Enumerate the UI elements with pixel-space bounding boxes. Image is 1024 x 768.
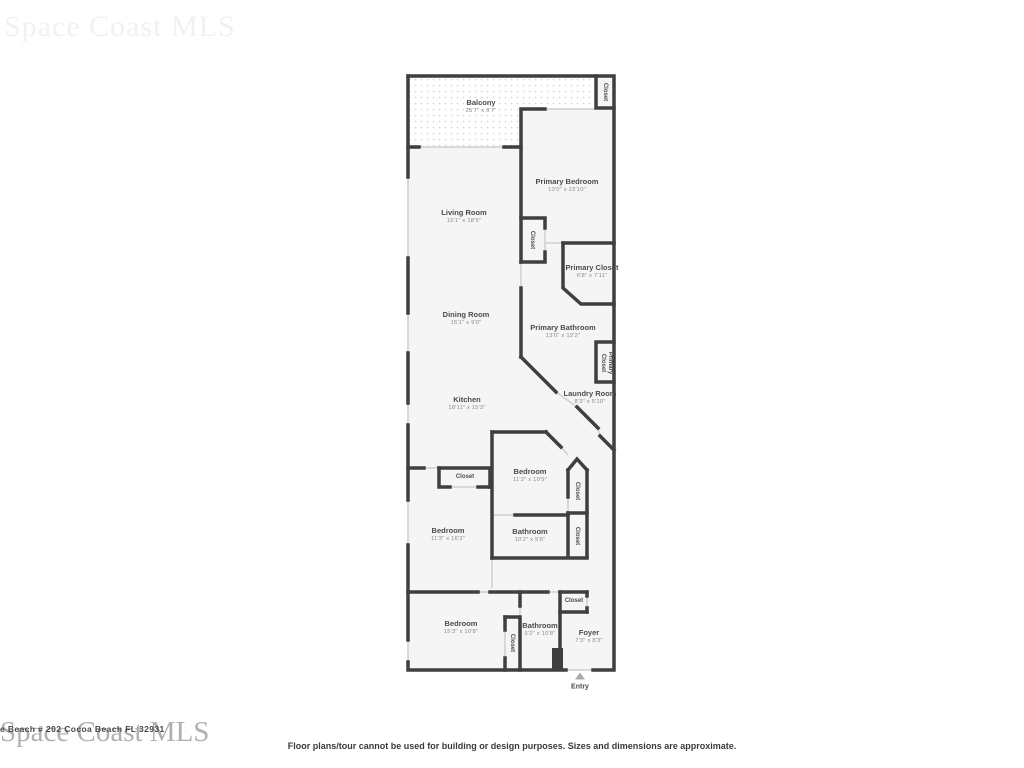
room-label-foyer: Foyer 7'3" x 8'3" [575,628,603,646]
entry-arrow-icon [575,673,585,680]
room-name: Bathroom [512,527,547,536]
room-name: Dining Room [443,310,490,319]
room-label-kitchen: Kitchen 18'11" x 15'3" [448,395,485,413]
room-dims: 15'1" x 9'0" [443,320,490,328]
room-label-closet-hall: Closet [456,473,474,481]
room-label-closet-primary-bedroom: Closet [528,231,536,249]
room-dims: 25'7" x 9'7" [466,108,497,116]
room-dims: 5'2" x 10'8" [522,631,557,639]
room-label-dining-room: Dining Room 15'1" x 9'0" [443,310,490,328]
room-label-closet-bedroom-2: Closet [573,482,581,500]
room-dims: 10'2" x 5'6" [512,537,547,545]
room-name: Primary Closet [600,352,613,374]
room-dims: 13'0" x 12'2" [530,333,595,341]
room-name: Laundry Room [564,389,617,398]
room-name: Closet [529,231,535,249]
room-name: Kitchen [453,395,481,404]
room-label-bedroom-3: Bedroom 11'3" x 16'3" [431,526,465,544]
room-dims: 15'3" x 10'8" [444,629,478,637]
room-name: Closet [574,527,580,545]
room-name: Primary Closet [566,263,619,272]
room-name: Primary Bathroom [530,323,595,332]
room-dims: 15'1" x 18'5" [441,218,486,226]
floor-plan-page: Space Coast MLS [0,0,1024,768]
floor-plan-walls [0,0,1024,768]
room-label-bathroom-2: Bathroom 10'2" x 5'6" [512,527,547,545]
room-label-bathroom-3: Bathroom 5'2" x 10'8" [522,621,557,639]
room-label-living-room: Living Room 15'1" x 18'5" [441,208,486,226]
room-name: Foyer [579,628,599,637]
room-name: Closet [602,83,608,101]
room-dims: 18'11" x 15'3" [448,405,485,413]
room-dims: 7'3" x 8'3" [575,638,603,646]
room-label-closet-foyer: Closet [565,597,583,605]
bathroom-plumbing-wall [552,648,563,670]
room-label-closet-bathroom-2: Closet [573,527,581,545]
room-name: Primary Bedroom [536,177,599,186]
room-dims: 11'3" x 16'3" [431,536,465,544]
room-label-bedroom-4: Bedroom 15'3" x 10'8" [444,619,478,637]
room-label-primary-bedroom: Primary Bedroom 13'0" x 23'10" [536,177,599,195]
room-label-primary-closet-small: Primary Closet [599,348,613,378]
room-label-balcony: Balcony 25'7" x 9'7" [466,98,497,116]
room-name: Closet [509,634,515,652]
room-label-primary-bathroom: Primary Bathroom 13'0" x 12'2" [530,323,595,341]
room-dims: 13'0" x 23'10" [536,187,599,195]
room-name: Bedroom [432,526,465,535]
room-dims: 8'3" x 5'10" [564,399,617,407]
room-label-primary-closet: Primary Closet 6'8" x 7'11" [566,263,619,281]
room-dims: 11'2" x 10'9" [513,477,547,485]
listing-address-overlay: e Beach # 202 Cocoa Beach FL 32931 [0,724,165,734]
room-name: Closet [456,474,474,480]
room-label-laundry-room: Laundry Room 8'3" x 5'10" [564,389,617,407]
entry-label: Entry [571,684,589,691]
disclaimer-text: Floor plans/tour cannot be used for buil… [0,741,1024,751]
room-name: Closet [574,482,580,500]
room-name: Bedroom [514,467,547,476]
room-label-closet-bedroom-4: Closet [508,634,516,652]
room-dims: 6'8" x 7'11" [566,273,619,281]
room-label-bedroom-2: Bedroom 11'2" x 10'9" [513,467,547,485]
room-name: Bedroom [445,619,478,628]
room-name: Balcony [466,98,495,107]
room-name: Closet [565,598,583,604]
room-name: Living Room [441,208,486,217]
room-name: Bathroom [522,621,557,630]
room-label-closet-balcony: Closet [601,83,609,101]
